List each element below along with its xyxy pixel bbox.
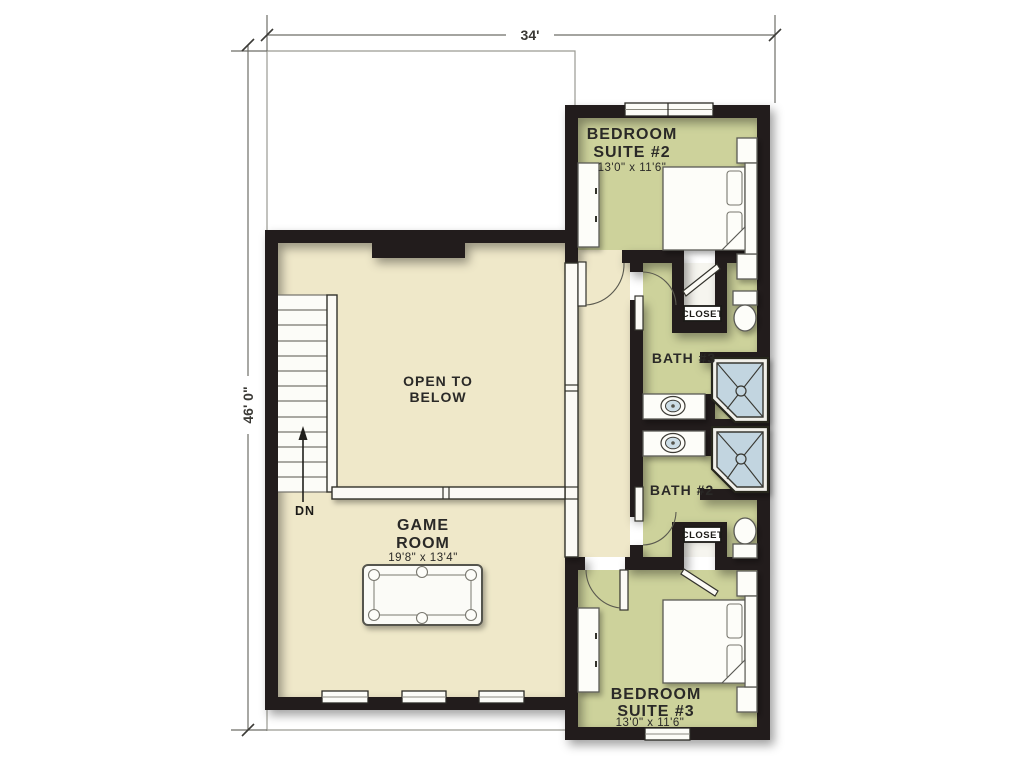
bedroom3-headboard (745, 596, 757, 687)
svg-text:GAME: GAME (397, 517, 449, 534)
stair-stringer (327, 295, 337, 492)
bedroom2-nightstand-bottom (737, 254, 757, 279)
stairs-dn-label: DN (295, 504, 315, 518)
svg-text:13'0" x 11'6": 13'0" x 11'6" (598, 162, 667, 174)
bath3-shower-drain (736, 386, 746, 396)
bedroom2-dresser (578, 163, 599, 247)
svg-text:BEDROOM: BEDROOM (611, 686, 702, 703)
bath3-vanity (643, 394, 705, 419)
svg-text:SUITE #2: SUITE #2 (593, 144, 670, 161)
bedroom2-window (625, 103, 713, 116)
bedroom3-dresser (578, 608, 599, 692)
bath2-vanity (643, 431, 705, 456)
floor-plan-drawing: 34' 46' 0" (0, 0, 1024, 768)
media-wall (372, 230, 465, 258)
railing-vertical (565, 263, 578, 557)
svg-text:BEDROOM: BEDROOM (587, 126, 678, 143)
game-room-label: GAME ROOM 19'8" x 13'4" (388, 517, 458, 564)
game-room-window-3 (479, 691, 524, 703)
svg-text:19'8" x 13'4": 19'8" x 13'4" (388, 552, 458, 564)
pool-table (363, 565, 482, 625)
open-to-below-label: OPEN TO BELOW (403, 373, 473, 405)
game-room-window-2 (402, 691, 446, 703)
bedroom3-nightstand-bottom (737, 687, 757, 712)
bath2-shower-drain (736, 454, 746, 464)
svg-text:OPEN TO: OPEN TO (403, 373, 473, 389)
svg-text:BATH #2: BATH #2 (650, 482, 714, 498)
floor-plan-page: 34' 46' 0" (0, 0, 1024, 768)
bath3-label: BATH #3 (652, 350, 716, 366)
svg-text:BELOW: BELOW (409, 389, 466, 405)
svg-text:BATH #3: BATH #3 (652, 350, 716, 366)
closet-upper-label: CLOSET (682, 309, 724, 320)
width-dimension-label: 34' (521, 27, 540, 43)
game-room-window-1 (322, 691, 368, 703)
bedroom3-nightstand-top (737, 571, 757, 596)
bedroom3-pillow-1 (727, 604, 742, 638)
svg-text:13'0" x 11'6": 13'0" x 11'6" (616, 717, 685, 729)
bath3-toilet (733, 291, 757, 331)
svg-text:ROOM: ROOM (396, 535, 450, 552)
bedroom2-nightstand-top (737, 138, 757, 163)
bath2-toilet (733, 518, 757, 558)
closet-lower-label: CLOSET (682, 530, 724, 541)
height-dimension-label: 46' 0" (240, 386, 256, 423)
bedroom3-window (645, 728, 690, 740)
bath2-label: BATH #2 (650, 482, 714, 498)
bedroom2-headboard (745, 163, 757, 254)
bedroom2-label: BEDROOM SUITE #2 13'0" x 11'6" (587, 126, 678, 174)
bedroom2-pillow-1 (727, 171, 742, 205)
staircase: DN (278, 295, 337, 518)
